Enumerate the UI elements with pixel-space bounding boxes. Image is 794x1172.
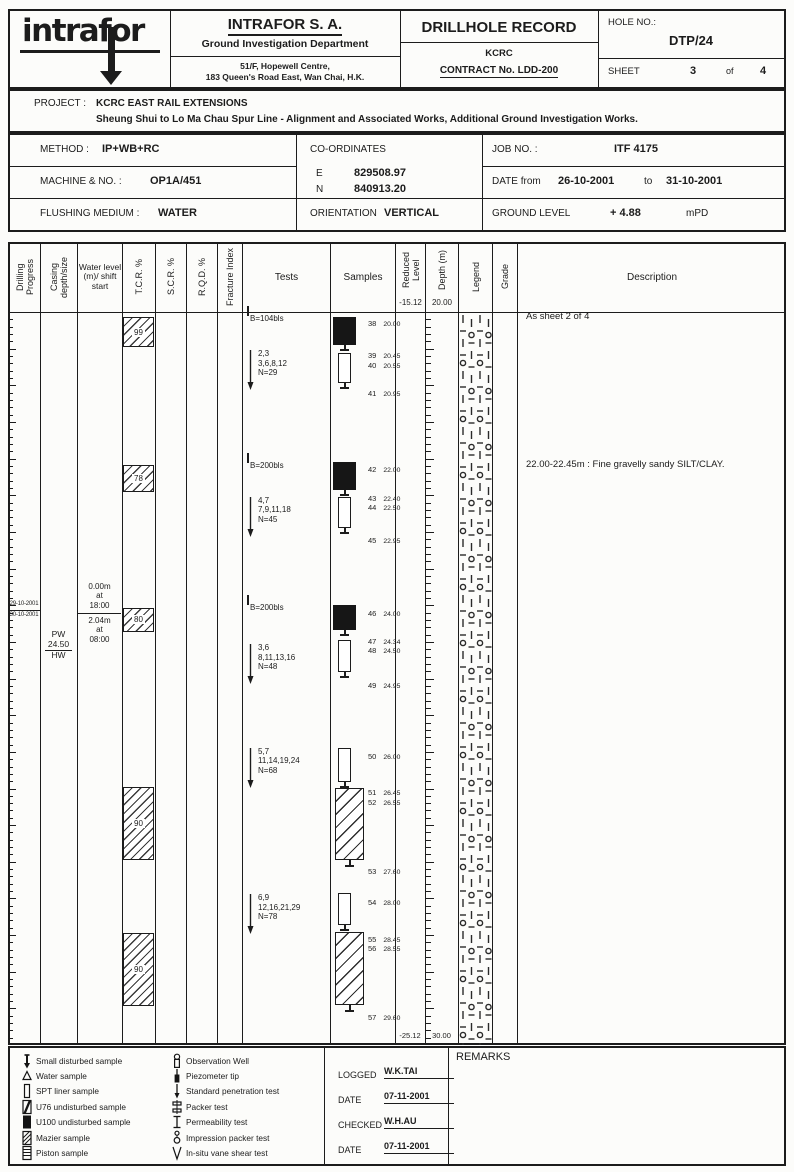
progress-ruler-tick — [9, 635, 13, 636]
water-level-divider — [78, 613, 121, 614]
spt-test-arrow-icon — [246, 350, 255, 390]
progress-ruler-tick — [9, 598, 13, 599]
depth-ruler-tick — [426, 503, 431, 504]
spt-test-arrow-icon — [246, 894, 255, 934]
progress-ruler-tick — [9, 1030, 13, 1031]
progress-ruler-tick — [9, 686, 13, 687]
progress-ruler-tick — [9, 810, 13, 811]
depth-ruler-tick — [426, 972, 434, 973]
progress-ruler-tick — [9, 862, 16, 863]
progress-ruler-tick — [9, 759, 13, 760]
piston-icon — [20, 1145, 34, 1161]
sample-stem-bar — [340, 532, 349, 534]
progress-ruler-tick — [9, 371, 13, 372]
progress-ruler-tick — [9, 503, 13, 504]
depth-ruler-tick — [426, 554, 431, 555]
sample-box-u100 — [333, 462, 356, 490]
progress-ruler-tick — [9, 400, 13, 401]
sample-key-label: Water sample — [36, 1071, 87, 1081]
depth-ruler-tick — [426, 473, 431, 474]
sample-key-item: Water sample — [18, 1068, 166, 1083]
depth-ruler-tick — [426, 444, 431, 445]
progress-ruler-tick — [9, 818, 13, 819]
progress-ruler-tick — [9, 679, 16, 680]
progress-ruler-tick — [9, 972, 16, 973]
sample-label: 3820.00 — [368, 313, 424, 331]
depth-ruler-tick — [426, 1016, 431, 1017]
sample-key-item: Small disturbed sample — [18, 1053, 166, 1068]
progress-ruler-tick — [9, 891, 13, 892]
checked-date-label: DATE — [338, 1145, 361, 1155]
sample-box-spt-liner — [338, 893, 351, 925]
column-header-legend: Legend — [459, 244, 492, 310]
progress-ruler-tick — [9, 745, 13, 746]
bottom-depth: 30.00 — [425, 1031, 458, 1040]
test-depth-tick — [247, 306, 249, 316]
checked-value: W.H.AU — [384, 1116, 454, 1129]
progress-ruler-tick — [9, 774, 13, 775]
depth-ruler-tick — [426, 642, 434, 643]
progress-ruler-tick — [9, 341, 13, 342]
progress-ruler-tick — [9, 715, 16, 716]
sample-box-spt-liner — [338, 640, 351, 672]
progress-ruler-tick — [9, 789, 16, 790]
spt-test-arrow-icon — [246, 748, 255, 788]
depth-ruler-tick — [426, 898, 434, 899]
depth-ruler-tick — [426, 657, 431, 658]
depth-ruler-tick — [426, 950, 431, 951]
progress-ruler-tick — [9, 569, 16, 570]
depth-ruler-tick — [426, 378, 431, 379]
progress-ruler-tick — [9, 825, 16, 826]
test-key-item: Permeability test — [168, 1115, 322, 1130]
test-key-item: Packer test — [168, 1099, 322, 1114]
depth-ruler-tick — [426, 466, 431, 467]
progress-ruler-tick — [9, 385, 16, 386]
permeability-icon — [170, 1114, 184, 1130]
progress-ruler-tick — [9, 547, 13, 548]
sample-label: 4422.50 — [368, 497, 424, 515]
sample-stem-bar — [340, 494, 349, 496]
stratum-description: As sheet 2 of 4 — [526, 311, 778, 322]
column-header-casing: Casing depth/size — [41, 244, 77, 310]
progress-ruler-tick — [9, 723, 13, 724]
test-key-item: Observation Well — [168, 1053, 322, 1068]
sample-label: 4924.95 — [368, 675, 424, 693]
depth-ruler-tick — [426, 957, 431, 958]
depth-ruler-tick — [426, 356, 431, 357]
progress-ruler-tick — [9, 869, 13, 870]
depth-ruler-tick — [426, 906, 431, 907]
sample-key-label: U76 undisturbed sample — [36, 1102, 126, 1112]
logged-date-value: 07-11-2001 — [384, 1091, 454, 1104]
progress-ruler-tick — [9, 415, 13, 416]
depth-ruler-tick — [426, 789, 434, 790]
depth-ruler-tick — [426, 385, 434, 386]
u100-icon — [20, 1114, 34, 1130]
progress-ruler-tick — [9, 1023, 13, 1024]
progress-ruler-tick — [9, 979, 13, 980]
divider — [324, 1048, 325, 1164]
depth-ruler-tick — [426, 407, 431, 408]
depth-ruler-tick — [426, 569, 434, 570]
depth-ruler-tick — [426, 429, 431, 430]
column-header-sub-depth: 20.00 — [426, 298, 458, 307]
depth-ruler-tick — [426, 979, 431, 980]
sample-label: 4222.00 — [368, 459, 424, 477]
progress-ruler-tick — [9, 649, 13, 650]
sample-key-label: Mazier sample — [36, 1133, 90, 1143]
depth-ruler-tick — [426, 539, 431, 540]
depth-ruler-tick — [426, 679, 434, 680]
progress-ruler-tick — [9, 444, 13, 445]
depth-ruler-tick — [426, 561, 431, 562]
depth-ruler-tick — [426, 810, 431, 811]
sample-box-u100 — [333, 605, 356, 630]
depth-ruler-tick — [426, 723, 431, 724]
progress-ruler-tick — [9, 437, 13, 438]
sample-label: 5226.55 — [368, 792, 424, 810]
water-level-entry: 0.00mat18:00 — [78, 582, 121, 611]
depth-ruler-tick — [426, 495, 434, 496]
progress-ruler-tick — [9, 767, 13, 768]
progress-ruler-tick — [9, 657, 13, 658]
progress-ruler-tick — [9, 378, 13, 379]
progress-ruler-tick — [9, 466, 13, 467]
progress-ruler-tick — [9, 451, 13, 452]
depth-ruler-tick — [426, 759, 431, 760]
progress-ruler-tick — [9, 620, 13, 621]
test-symbol-key: Observation Well Piezometer tip Standard… — [168, 1053, 322, 1161]
test-spt-values: 5,711,14,19,24N=68 — [258, 747, 328, 776]
column-header-tests: Tests — [243, 244, 330, 310]
depth-ruler-tick — [426, 935, 434, 936]
column-header-tcr: T.C.R. % — [123, 244, 155, 310]
progress-ruler-tick — [9, 349, 16, 350]
depth-ruler-tick — [426, 884, 431, 885]
column-header-description: Description — [518, 244, 786, 310]
bottom-reduced-level: -25.12 — [395, 1031, 425, 1040]
sample-label: 5327.60 — [368, 861, 424, 879]
depth-ruler-tick — [426, 334, 431, 335]
column-divider — [217, 244, 218, 1043]
impression-packer-icon — [170, 1130, 184, 1146]
sample-key-label: Small disturbed sample — [36, 1056, 122, 1066]
progress-ruler-tick — [9, 481, 13, 482]
test-depth-tick — [247, 595, 249, 605]
progress-ruler-tick — [9, 913, 13, 914]
progress-ruler-tick — [9, 334, 13, 335]
checked-date-value: 07-11-2001 — [384, 1141, 454, 1154]
drilling-progress-divider — [9, 610, 40, 611]
spt-liner-icon — [20, 1083, 34, 1099]
logged-date-label: DATE — [338, 1095, 361, 1105]
test-key-item: Standard penetration test — [168, 1084, 322, 1099]
test-key-label: Permeability test — [186, 1117, 247, 1127]
sample-label: 5026.00 — [368, 746, 424, 764]
column-divider — [492, 244, 493, 1043]
progress-ruler-tick — [9, 488, 13, 489]
depth-ruler-tick — [426, 517, 431, 518]
depth-ruler-tick — [426, 942, 431, 943]
log-content-layer: Drilling ProgressCasing depth/sizeWater … — [0, 0, 794, 1172]
column-header-grade: Grade — [493, 244, 517, 310]
progress-ruler-tick — [9, 1016, 13, 1017]
progress-ruler-tick — [9, 393, 13, 394]
progress-ruler-tick — [9, 898, 16, 899]
depth-ruler-tick — [426, 862, 434, 863]
test-key-label: In-situ vane shear test — [186, 1148, 268, 1158]
test-key-label: Standard penetration test — [186, 1086, 279, 1096]
depth-ruler-tick — [426, 591, 431, 592]
depth-ruler-tick — [426, 613, 431, 614]
sample-stem-bar — [340, 634, 349, 636]
spt-test-arrow-icon — [246, 497, 255, 537]
depth-ruler-tick — [426, 745, 431, 746]
test-spt-values: 4,77,9,11,18N=45 — [258, 496, 328, 525]
test-key-item: Piezometer tip — [168, 1068, 322, 1083]
depth-ruler-tick — [426, 1023, 431, 1024]
depth-ruler-tick — [426, 620, 431, 621]
progress-ruler-tick — [9, 363, 13, 364]
progress-ruler-tick — [9, 1038, 13, 1039]
sample-key-label: U100 undisturbed sample — [36, 1117, 131, 1127]
progress-ruler-tick — [9, 532, 16, 533]
small-disturbed-icon — [20, 1053, 34, 1069]
column-header-rqd: R.Q.D. % — [187, 244, 217, 310]
progress-ruler-tick — [9, 664, 13, 665]
progress-ruler-tick — [9, 327, 13, 328]
depth-ruler-tick — [426, 767, 431, 768]
depth-ruler-tick — [426, 415, 431, 416]
depth-ruler-tick — [426, 964, 431, 965]
test-spt-values: 2,33,6,8,12N=29 — [258, 349, 328, 378]
progress-ruler-tick — [9, 561, 13, 562]
spt-arrow-icon — [170, 1083, 184, 1099]
sample-label: 4522.95 — [368, 530, 424, 548]
depth-ruler-tick — [426, 832, 431, 833]
column-divider — [330, 244, 331, 1043]
depth-ruler-tick — [426, 525, 431, 526]
depth-ruler-tick — [426, 627, 431, 628]
signoff-cell: LOGGED W.K.TAI DATE 07-11-2001 CHECKED W… — [330, 1048, 448, 1164]
progress-ruler-tick — [9, 847, 13, 848]
tcr-value-box: 78 — [123, 465, 154, 492]
progress-ruler-tick — [9, 796, 13, 797]
checked-label: CHECKED — [338, 1120, 382, 1130]
depth-ruler-tick — [426, 920, 431, 921]
progress-ruler-tick — [9, 730, 13, 731]
depth-ruler-tick — [426, 1001, 431, 1002]
column-divider — [122, 244, 123, 1043]
sample-box-mazier — [335, 932, 364, 1005]
sample-key-item: SPT liner sample — [18, 1084, 166, 1099]
depth-ruler-tick — [426, 803, 431, 804]
sample-stem-bar — [345, 1010, 354, 1012]
progress-ruler-tick — [9, 876, 13, 877]
sample-stem-bar — [340, 929, 349, 931]
progress-ruler-tick — [9, 957, 13, 958]
progress-ruler-tick — [9, 473, 13, 474]
column-header-water-level: Water level (m)/ shift start — [78, 244, 122, 310]
depth-ruler-tick — [426, 605, 434, 606]
progress-ruler-tick — [9, 928, 13, 929]
logged-label: LOGGED — [338, 1070, 377, 1080]
progress-ruler-tick — [9, 832, 13, 833]
progress-ruler-tick — [9, 840, 13, 841]
logged-value: W.K.TAI — [384, 1066, 454, 1079]
drillhole-record-page: intrafor INTRAFOR S. A. Ground Investiga… — [0, 0, 794, 1172]
sample-key-label: Piston sample — [36, 1148, 88, 1158]
water-level-entry: 2.04mat08:00 — [78, 616, 121, 645]
sample-symbol-key: Small disturbed sample Water sample SPT … — [18, 1053, 166, 1161]
depth-ruler-tick — [426, 459, 434, 460]
depth-ruler-tick — [426, 488, 431, 489]
depth-ruler-tick — [426, 876, 431, 877]
vane-shear-icon — [170, 1145, 184, 1161]
depth-ruler-tick — [426, 781, 431, 782]
progress-ruler-tick — [9, 459, 16, 460]
test-key-item: In-situ vane shear test — [168, 1145, 322, 1160]
progress-ruler-tick — [9, 627, 13, 628]
sample-box-u100 — [333, 317, 356, 345]
depth-ruler-tick — [426, 774, 431, 775]
soil-legend-pattern — [459, 313, 492, 1045]
remarks-label: REMARKS — [456, 1051, 510, 1063]
depth-ruler-tick — [426, 891, 431, 892]
depth-ruler-tick — [426, 371, 431, 372]
progress-ruler-tick — [9, 752, 16, 753]
progress-ruler-tick — [9, 576, 13, 577]
depth-ruler-tick — [426, 854, 431, 855]
test-spt-values: 3,68,11,13,16N=48 — [258, 643, 328, 672]
column-header-scr: S.C.R. % — [156, 244, 186, 310]
progress-ruler-tick — [9, 591, 13, 592]
sample-label: 5628.55 — [368, 938, 424, 956]
progress-ruler-tick — [9, 994, 13, 995]
progress-ruler-tick — [9, 1001, 13, 1002]
depth-ruler-tick — [426, 349, 434, 350]
test-depth-tick — [247, 453, 249, 463]
u76-icon — [20, 1099, 34, 1115]
depth-ruler-tick — [426, 913, 431, 914]
depth-ruler-tick — [426, 752, 434, 753]
progress-ruler-tick — [9, 986, 13, 987]
column-header-fracture-index: Fracture Index — [218, 244, 242, 310]
progress-ruler-tick — [9, 510, 13, 511]
tcr-value-box: 99 — [123, 317, 154, 347]
depth-ruler-tick — [426, 994, 431, 995]
progress-ruler-tick — [9, 495, 16, 496]
depth-ruler-tick — [426, 928, 431, 929]
progress-ruler-tick — [9, 356, 13, 357]
sample-key-item: Piston sample — [18, 1145, 166, 1160]
spt-test-arrow-icon — [246, 644, 255, 684]
column-header-depth: Depth (m) — [426, 244, 458, 296]
column-header-samples: Samples — [331, 244, 395, 310]
footer-block: REMARKS Small disturbed sample Water sam… — [8, 1046, 786, 1166]
progress-ruler-tick — [9, 964, 13, 965]
piezometer-tip-icon — [170, 1068, 184, 1084]
depth-ruler-tick — [426, 576, 431, 577]
progress-ruler-tick — [9, 583, 13, 584]
depth-ruler-tick — [426, 737, 431, 738]
test-key-label: Observation Well — [186, 1056, 249, 1066]
water-icon — [20, 1068, 34, 1084]
depth-ruler-tick — [426, 701, 431, 702]
progress-ruler-tick — [9, 671, 13, 672]
progress-ruler-tick — [9, 701, 13, 702]
depth-ruler-tick — [426, 400, 431, 401]
tcr-value-box: 90 — [123, 787, 154, 860]
column-header-drilling-progress: Drilling Progress — [9, 244, 40, 310]
progress-ruler-tick — [9, 539, 13, 540]
progress-ruler-tick — [9, 1008, 16, 1009]
column-header-reduced-level: Reduced Level — [396, 244, 425, 296]
depth-ruler-tick — [426, 327, 431, 328]
progress-ruler-tick — [9, 319, 13, 320]
depth-ruler-tick — [426, 825, 434, 826]
depth-ruler-tick — [426, 481, 431, 482]
mazier-icon — [20, 1130, 34, 1146]
depth-ruler-tick — [426, 818, 431, 819]
sample-box-spt-liner — [338, 748, 351, 782]
progress-ruler-tick — [9, 737, 13, 738]
depth-ruler-tick — [426, 583, 431, 584]
depth-ruler-tick — [426, 393, 431, 394]
progress-ruler-tick — [9, 884, 13, 885]
depth-ruler-tick — [426, 671, 431, 672]
depth-ruler-tick — [426, 547, 431, 548]
depth-ruler-tick — [426, 363, 431, 364]
depth-ruler-tick — [426, 869, 431, 870]
sample-label: 4020.55 — [368, 355, 424, 373]
depth-ruler-tick — [426, 451, 431, 452]
progress-ruler-tick — [9, 554, 13, 555]
test-driving-resistance: B=200bls — [250, 603, 284, 612]
depth-ruler-tick — [426, 840, 431, 841]
depth-ruler-tick — [426, 708, 431, 709]
depth-ruler-tick — [426, 1008, 434, 1009]
test-spt-values: 6,912,16,21,29N=78 — [258, 893, 328, 922]
progress-ruler-tick — [9, 422, 16, 423]
depth-ruler-tick — [426, 664, 431, 665]
depth-ruler-tick — [426, 341, 431, 342]
progress-ruler-tick — [9, 920, 13, 921]
sample-stem-bar — [340, 349, 349, 351]
progress-ruler-tick — [9, 642, 16, 643]
column-divider — [517, 244, 518, 1043]
sample-stem-bar — [340, 387, 349, 389]
column-header-sub-reduced-level: -15.12 — [396, 298, 425, 307]
progress-ruler-tick — [9, 525, 13, 526]
depth-ruler-tick — [426, 986, 431, 987]
progress-ruler-tick — [9, 708, 13, 709]
sample-box-spt-liner — [338, 353, 351, 383]
depth-ruler-tick — [426, 715, 434, 716]
sample-key-item: U76 undisturbed sample — [18, 1099, 166, 1114]
depth-ruler-tick — [426, 649, 431, 650]
progress-ruler-tick — [9, 906, 13, 907]
drilling-progress-date: 29-10-2001 — [9, 601, 39, 607]
depth-ruler-tick — [426, 437, 431, 438]
sample-stem-bar — [345, 865, 354, 867]
packer-icon — [170, 1099, 184, 1115]
progress-ruler-tick — [9, 942, 13, 943]
sample-stem-bar — [340, 676, 349, 678]
column-divider — [186, 244, 187, 1043]
depth-ruler-tick — [426, 510, 431, 511]
